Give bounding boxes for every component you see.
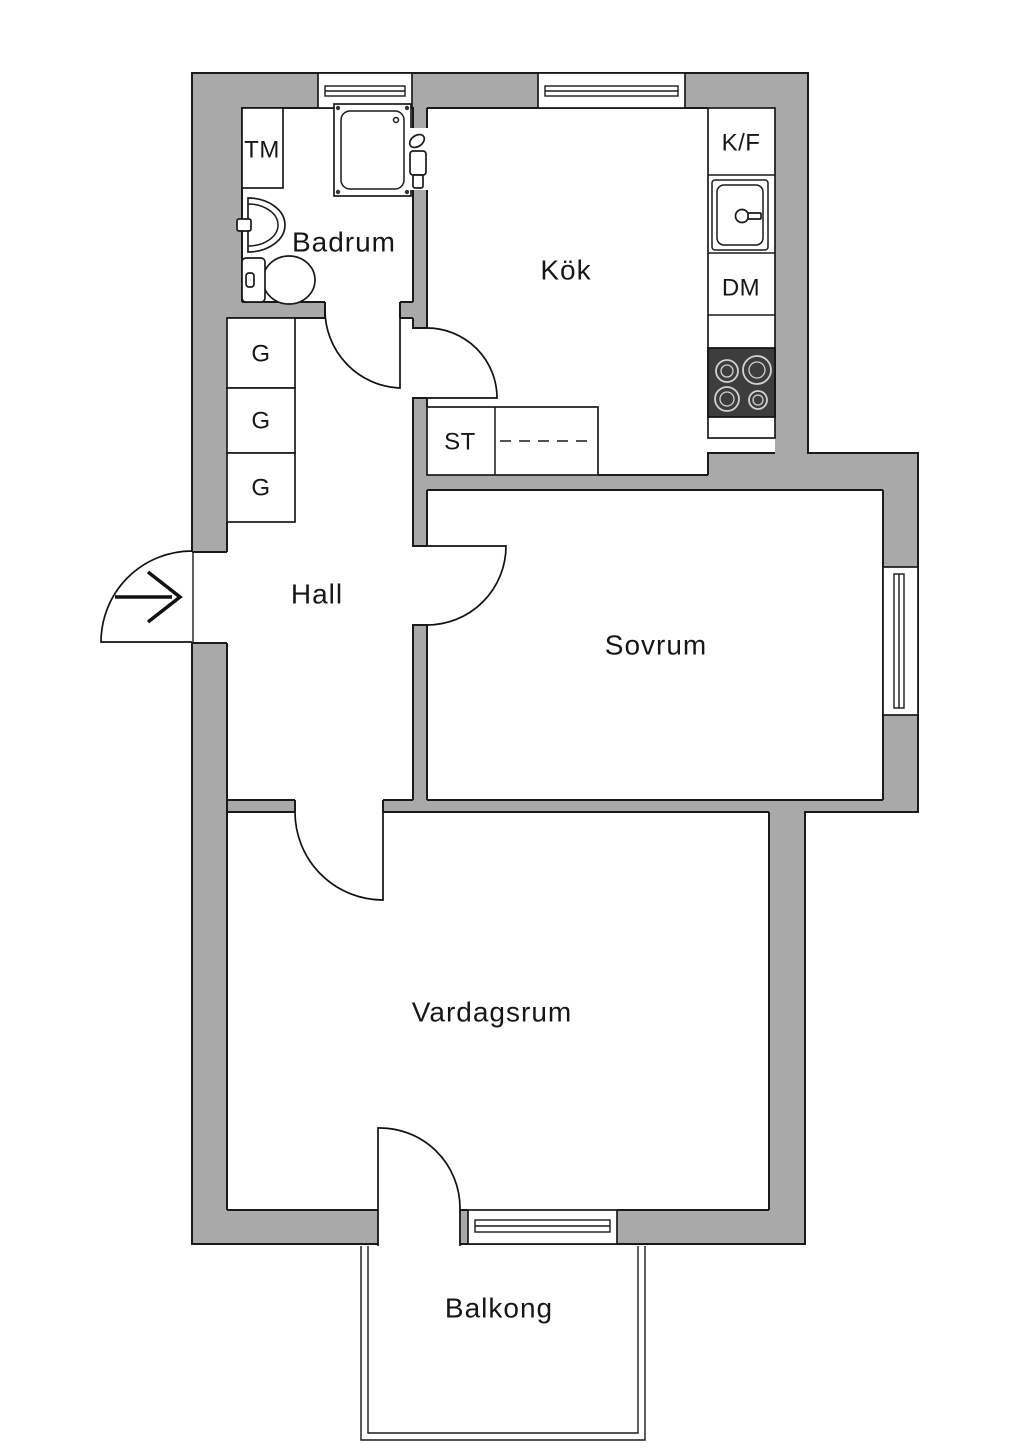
label-closet-st: ST [444, 429, 476, 456]
wall-segment [192, 643, 227, 1210]
window-livingroom-bottom [468, 1210, 617, 1244]
wall-segment [883, 715, 918, 800]
room-label-kok: Kök [540, 255, 591, 286]
wall-segment [192, 302, 325, 318]
wall-segment [775, 108, 808, 453]
wall-segment [413, 475, 708, 490]
wall-segment [413, 398, 427, 546]
window-kitchen-top [538, 73, 685, 108]
wall-segment [883, 490, 918, 567]
label-fridge-freezer: K/F [722, 130, 761, 157]
balcony-door-opening [379, 1205, 459, 1247]
room-label-balkong: Balkong [445, 1293, 553, 1324]
wall-segment [708, 453, 918, 490]
toilet-icon [242, 256, 315, 304]
label-wardrobe-1: G [251, 341, 270, 368]
stove-icon [708, 348, 775, 417]
room-label-badrum: Badrum [292, 227, 396, 258]
wall-segment [413, 625, 427, 800]
label-wardrobe-2: G [251, 408, 270, 435]
floor-plan-page: Badrum Kök Hall Sovrum Vardagsrum Balkon… [0, 0, 1024, 1448]
wall-segment [192, 108, 242, 302]
wall-segment [192, 318, 227, 552]
floor-plan-canvas: Badrum Kök Hall Sovrum Vardagsrum Balkon… [0, 0, 1024, 1448]
label-dishwasher: DM [722, 275, 760, 302]
room-label-hall: Hall [291, 579, 343, 610]
wall-segment [400, 302, 413, 318]
room-label-sovrum: Sovrum [605, 630, 707, 661]
wall-segment [227, 800, 295, 812]
window-bedroom-right [883, 567, 918, 715]
label-wardrobe-3: G [251, 475, 270, 502]
wall-segment [769, 812, 805, 1210]
wall-segment [383, 800, 918, 812]
wall-segment [192, 73, 808, 108]
window-badrum-top [318, 73, 412, 108]
label-washing-machine: TM [244, 137, 280, 164]
room-label-vardagsrum: Vardagsrum [412, 997, 572, 1028]
